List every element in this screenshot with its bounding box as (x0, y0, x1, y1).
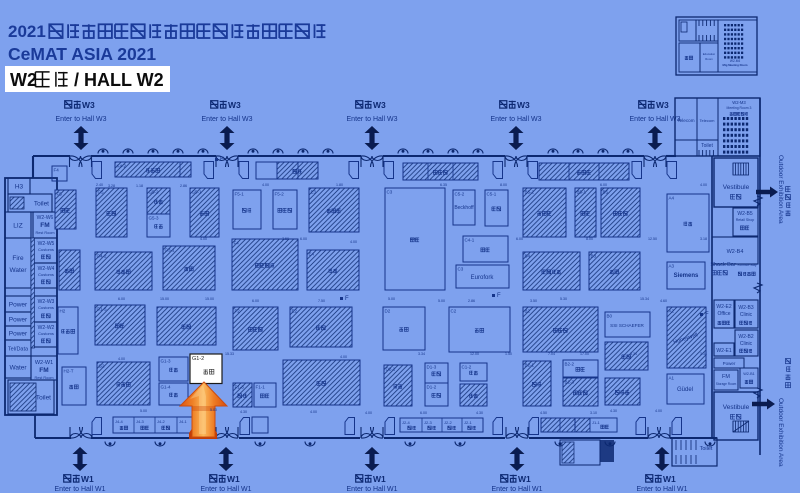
svg-text:5.00: 5.00 (438, 299, 445, 303)
svg-text:Enter to Hall W1: Enter to Hall W1 (492, 486, 543, 493)
svg-text:15.34: 15.34 (640, 297, 649, 301)
svg-text:J1-1: J1-1 (592, 420, 601, 425)
svg-text:J2-2: J2-2 (444, 420, 453, 425)
svg-text:G3-1: G3-1 (165, 247, 176, 252)
svg-text:B2-1: B2-1 (525, 362, 535, 367)
svg-text:W2-B5: W2-B5 (737, 211, 753, 217)
svg-text:G1-4: G1-4 (161, 384, 172, 389)
svg-text:W2-W6: W2-W6 (37, 215, 54, 221)
svg-text:Customs: Customs (38, 331, 54, 336)
svg-text:Enter to Hall W3: Enter to Hall W3 (630, 116, 681, 123)
svg-text:Outdoor Exhibition Area: Outdoor Exhibition Area (777, 155, 784, 224)
svg-text:W2-B2: W2-B2 (738, 334, 754, 340)
svg-text:8.00: 8.00 (586, 237, 593, 241)
svg-text:W3: W3 (228, 100, 241, 110)
svg-text:B2-2: B2-2 (565, 361, 575, 366)
svg-text:Meeting Room 3: Meeting Room 3 (727, 106, 752, 110)
svg-text:Water: Water (9, 365, 27, 372)
svg-text:H2-T: H2-T (64, 368, 74, 373)
svg-text:W2-B1: W2-B1 (743, 372, 755, 376)
svg-text:G1-3: G1-3 (161, 358, 172, 363)
svg-text:G4-2: G4-2 (97, 253, 108, 258)
svg-text:Education: Education (703, 52, 716, 56)
svg-text:Enter to Hall W3: Enter to Hall W3 (202, 116, 253, 123)
svg-text:Toilet: Toilet (700, 446, 713, 452)
svg-text:C3: C3 (387, 189, 393, 194)
svg-text:F: F (497, 293, 501, 299)
svg-text:1.18: 1.18 (136, 184, 143, 188)
svg-text:W1: W1 (227, 474, 240, 484)
svg-text:Office: Office (718, 311, 731, 317)
svg-text:W2-B4: W2-B4 (727, 249, 744, 255)
svg-text:Tel/Data: Tel/Data (8, 347, 29, 353)
svg-text:5.30: 5.30 (560, 297, 567, 301)
svg-text:Enter to Hall W3: Enter to Hall W3 (347, 116, 398, 123)
svg-text:1.80: 1.80 (336, 183, 343, 187)
svg-text:6.00: 6.00 (600, 183, 607, 187)
svg-text:Power: Power (9, 331, 28, 338)
svg-text:J2-3: J2-3 (424, 420, 433, 425)
svg-text:W1: W1 (373, 474, 386, 484)
svg-text:Power: Power (9, 317, 28, 324)
svg-text:Clinic: Clinic (740, 341, 753, 347)
svg-text:A1: A1 (669, 375, 675, 380)
svg-text:C1-2: C1-2 (462, 364, 472, 369)
svg-text:Outdoor Exhibition Area: Outdoor Exhibition Area (777, 398, 784, 467)
svg-text:Water: Water (9, 267, 27, 274)
svg-text:D1-3: D1-3 (427, 364, 437, 369)
svg-text:CeMAT ASIA 2021: CeMAT ASIA 2021 (8, 44, 156, 64)
svg-text:J4-2: J4-2 (157, 419, 166, 424)
svg-text:4.00: 4.00 (262, 183, 269, 187)
svg-text:Power: Power (9, 302, 28, 309)
svg-text:Enter to Hall W1: Enter to Hall W1 (55, 486, 106, 493)
svg-text:Rest Room: Rest Room (36, 231, 55, 235)
svg-text:H3: H3 (15, 184, 24, 191)
svg-text:B5: B5 (603, 189, 609, 194)
svg-text:Güdel: Güdel (677, 387, 693, 393)
svg-text:FM: FM (722, 374, 730, 380)
svg-text:F2: F2 (235, 308, 241, 313)
svg-text:4.00: 4.00 (700, 183, 707, 187)
svg-text:FM: FM (40, 222, 49, 229)
svg-text:J2-1: J2-1 (464, 420, 473, 425)
svg-text:Fire: Fire (12, 255, 24, 262)
svg-text:G5: G5 (98, 189, 105, 194)
svg-text:Shack Bar: Shack Bar (710, 262, 736, 268)
svg-text:6.00: 6.00 (118, 297, 125, 301)
svg-text:4.00: 4.00 (310, 410, 317, 414)
svg-text:4.00: 4.00 (365, 411, 372, 415)
svg-text:G5-1: G5-1 (192, 189, 203, 194)
svg-text:Vestibule: Vestibule (723, 184, 750, 191)
svg-text:Enter to Hall W3: Enter to Hall W3 (56, 116, 107, 123)
svg-text:3.34: 3.34 (700, 352, 707, 356)
svg-text:Retail Shop: Retail Shop (736, 218, 755, 222)
svg-text:J4-1: J4-1 (179, 419, 188, 424)
svg-text:B2-3: B2-3 (565, 379, 575, 384)
svg-text:3.28: 3.28 (108, 184, 115, 188)
svg-text:F1-3: F1-3 (235, 384, 245, 389)
svg-text:4.50: 4.50 (540, 411, 547, 415)
svg-text:Enter to Hall W1: Enter to Hall W1 (201, 486, 252, 493)
svg-text:4.30: 4.30 (240, 410, 247, 414)
svg-text:F1-1: F1-1 (256, 384, 266, 389)
svg-text:2021: 2021 (8, 22, 46, 41)
svg-text:4.00: 4.00 (350, 240, 357, 244)
svg-text:G1-5: G1-5 (97, 306, 108, 311)
svg-text:D2-1: D2-1 (386, 366, 396, 371)
svg-text:W2: W2 (10, 70, 37, 90)
svg-text:3.18: 3.18 (700, 237, 707, 241)
svg-text:E4: E4 (309, 251, 315, 256)
svg-text:C5-1: C5-1 (487, 191, 497, 196)
svg-text:8.00: 8.00 (500, 183, 507, 187)
svg-text:6.00: 6.00 (516, 237, 523, 241)
svg-text:D1-2: D1-2 (427, 384, 437, 389)
svg-text:Vestibule: Vestibule (723, 404, 750, 411)
svg-text:F: F (705, 312, 709, 318)
svg-text:W1: W1 (518, 474, 531, 484)
svg-text:Customs: Customs (38, 305, 54, 310)
svg-text:J2-4: J2-4 (402, 420, 411, 425)
svg-text:W3: W3 (517, 100, 530, 110)
svg-text:12.50: 12.50 (648, 237, 657, 241)
svg-text:E2: E2 (292, 308, 298, 313)
svg-text:15.00: 15.00 (160, 297, 169, 301)
svg-text:3.34: 3.34 (418, 352, 425, 356)
svg-text:Beckhoff: Beckhoff (454, 205, 474, 211)
svg-text:W3: W3 (82, 100, 95, 110)
svg-text:A2: A2 (669, 308, 675, 313)
svg-text:2.86: 2.86 (468, 299, 475, 303)
svg-text:F: F (345, 296, 349, 302)
svg-text:B4: B4 (525, 253, 531, 258)
svg-text:/ HALL W2: / HALL W2 (74, 70, 164, 90)
svg-text:Rest Room: Rest Room (35, 376, 54, 380)
svg-text:Toilet: Toilet (36, 395, 51, 402)
svg-text:G5-3: G5-3 (149, 215, 160, 220)
svg-text:F4: F4 (234, 240, 240, 245)
svg-text:4.00: 4.00 (655, 409, 662, 413)
svg-text:6.00: 6.00 (252, 299, 259, 303)
svg-text:B3: B3 (591, 253, 597, 258)
svg-text:Mtg Meeting Room: Mtg Meeting Room (722, 63, 748, 67)
svg-text:LIZ: LIZ (13, 223, 22, 230)
svg-text:Eurofork: Eurofork (471, 275, 495, 281)
svg-text:6.00: 6.00 (420, 411, 427, 415)
svg-text:15.00: 15.00 (205, 297, 214, 301)
svg-text:Enter to Hall W1: Enter to Hall W1 (347, 486, 398, 493)
svg-text:J4-4: J4-4 (115, 419, 124, 424)
svg-text:W2-W1: W2-W1 (35, 360, 53, 366)
svg-text:W2-E1: W2-E1 (716, 348, 732, 354)
svg-text:Siemens: Siemens (674, 273, 699, 279)
svg-text:B5-2: B5-2 (525, 189, 535, 194)
svg-text:4.00: 4.00 (340, 355, 347, 359)
svg-text:Toilet: Toilet (701, 143, 713, 149)
svg-text:7.50: 7.50 (318, 299, 325, 303)
svg-text:4.00: 4.00 (118, 357, 125, 361)
svg-text:Power: Power (723, 361, 736, 366)
svg-text:B0: B0 (607, 313, 613, 318)
svg-text:W2-B3: W2-B3 (738, 305, 754, 311)
svg-text:C2: C2 (451, 308, 457, 313)
svg-text:F5: F5 (57, 191, 63, 196)
svg-text:K4-2: K4-2 (117, 163, 127, 168)
svg-text:Customs: Customs (38, 272, 54, 277)
svg-text:Toilet: Toilet (34, 201, 49, 208)
svg-text:F5-1: F5-1 (235, 191, 245, 196)
svg-text:C3: C3 (458, 266, 464, 271)
svg-text:E3: E3 (311, 189, 317, 194)
svg-text:4.30: 4.30 (610, 409, 617, 413)
svg-text:B5-1: B5-1 (577, 189, 587, 194)
svg-text:3.10: 3.10 (590, 411, 597, 415)
svg-text:4.30: 4.30 (476, 411, 483, 415)
svg-text:G2: G2 (99, 363, 106, 368)
svg-text:Room: Room (705, 57, 713, 61)
svg-text:A3: A3 (669, 263, 675, 268)
svg-text:W3: W3 (373, 100, 386, 110)
svg-text:W1: W1 (81, 474, 94, 484)
svg-text:Storage Room: Storage Room (716, 382, 737, 386)
svg-text:12.00: 12.00 (470, 352, 479, 356)
svg-text:4.00: 4.00 (200, 237, 207, 241)
svg-text:C4-1: C4-1 (465, 237, 475, 242)
svg-text:Sunrise Bay: Sunrise Bay (737, 263, 757, 267)
svg-text:W1: W1 (663, 474, 676, 484)
svg-text:W2-M3: W2-M3 (732, 100, 746, 105)
svg-text:J4-3: J4-3 (136, 419, 145, 424)
svg-text:G1-2: G1-2 (192, 356, 204, 362)
svg-text:W2-E2: W2-E2 (716, 304, 732, 310)
svg-text:1.50: 1.50 (505, 352, 512, 356)
svg-text:5.00: 5.00 (210, 408, 217, 412)
svg-text:4.00: 4.00 (410, 237, 417, 241)
svg-text:2.40: 2.40 (96, 183, 103, 187)
svg-text:3.50: 3.50 (530, 299, 537, 303)
svg-text:2.86: 2.86 (180, 184, 187, 188)
svg-text:Clinic: Clinic (740, 312, 753, 318)
svg-text:15.33: 15.33 (225, 352, 234, 356)
svg-text:7.04: 7.04 (548, 352, 555, 356)
svg-text:7.50: 7.50 (282, 237, 289, 241)
svg-text:3.34: 3.34 (630, 352, 637, 356)
svg-text:H2: H2 (60, 308, 66, 313)
svg-text:A4: A4 (669, 195, 675, 200)
svg-text:5.00: 5.00 (140, 409, 147, 413)
svg-text:G5-2: G5-2 (149, 189, 160, 194)
svg-text:Enter to Hall W3: Enter to Hall W3 (491, 116, 542, 123)
svg-text:SSI SCHAEFER: SSI SCHAEFER (610, 323, 644, 328)
svg-text:Telecom: Telecom (700, 118, 716, 123)
svg-text:FM: FM (39, 367, 48, 374)
svg-text:5.00: 5.00 (388, 297, 395, 301)
svg-text:Telecom: Telecom (677, 118, 694, 123)
svg-text:F5-2: F5-2 (275, 191, 285, 196)
svg-text:F4: F4 (54, 167, 60, 172)
svg-text:4.60: 4.60 (660, 299, 667, 303)
svg-text:6.00: 6.00 (300, 237, 307, 241)
svg-text:C5-2: C5-2 (455, 191, 465, 196)
svg-text:D2: D2 (385, 308, 391, 313)
svg-text:F: F (220, 157, 224, 163)
svg-text:17.00: 17.00 (580, 352, 589, 356)
svg-text:Enter to Hall W1: Enter to Hall W1 (637, 486, 688, 493)
svg-text:B2: B2 (525, 308, 531, 313)
svg-text:W3: W3 (656, 100, 669, 110)
svg-text:6.35: 6.35 (440, 183, 447, 187)
svg-text:Customs: Customs (38, 247, 54, 252)
